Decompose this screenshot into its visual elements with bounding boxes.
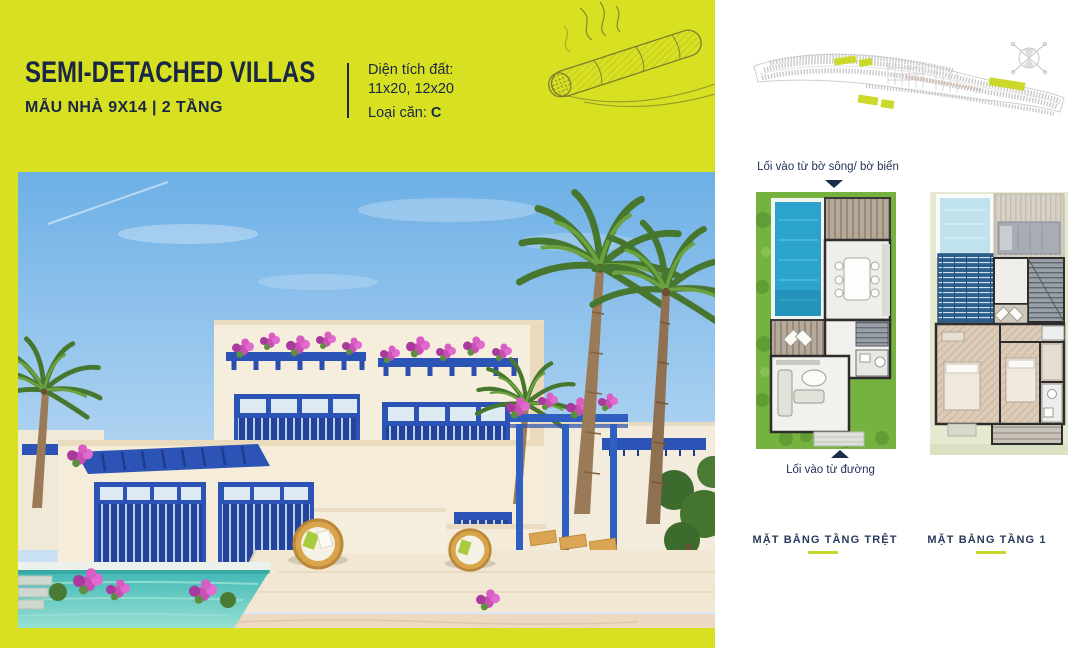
unit-info: Diện tích đất: 11x20, 12x20 Loại căn: C: [368, 61, 454, 123]
master-site-plan: [746, 30, 1072, 130]
page-title: SEMI-DETACHED VILLAS: [25, 56, 315, 90]
ground-floor-caption-underline: [808, 551, 838, 554]
land-area-label: Diện tích đất:: [368, 61, 454, 80]
entry-arrow-up-icon: [831, 450, 849, 458]
land-area-value: 11x20, 12x20: [368, 80, 454, 99]
entry-arrow-down-icon: [825, 180, 843, 188]
entry-top-label: Lối vào từ bờ sông/ bờ biển: [738, 161, 918, 173]
landing-deck: [994, 304, 1028, 324]
unit-type-label: Loại căn:: [368, 105, 427, 121]
first-floor-caption: MẶT BẰNG TẦNG 1: [912, 534, 1062, 546]
ground-floor-caption: MẶT BẰNG TẦNG TRỆT: [740, 534, 910, 546]
cigar-body: [545, 27, 704, 101]
hallway: [994, 258, 1028, 304]
first-floor-caption-underline: [976, 551, 1006, 554]
unit-type-line: Loại căn: C: [368, 104, 454, 123]
living-room: [771, 356, 849, 432]
page-subtitle: MẪU NHÀ 9X14 | 2 TẦNG: [25, 99, 223, 117]
bedroom-block: [936, 324, 1064, 424]
entrance-steps: [814, 432, 864, 446]
top-deck: [825, 198, 890, 240]
entry-bottom-label: Lối vào từ đường: [758, 464, 903, 476]
stairs: [1028, 258, 1064, 322]
louvre-roof: [938, 254, 994, 322]
header-divider: [347, 63, 349, 118]
dining-room: [825, 240, 890, 320]
roof-terrace: [994, 194, 1064, 260]
cigar-smoke: [564, 2, 620, 52]
pool: [771, 198, 825, 320]
first-floor-plan: [930, 192, 1068, 455]
ground-floor-plan: [756, 192, 896, 449]
brochure-page: SEMI-DETACHED VILLAS MẪU NHÀ 9X14 | 2 TẦ…: [0, 0, 1080, 648]
compass-rose-icon: [1012, 43, 1047, 74]
cigar-illustration: [540, 0, 715, 110]
villa-rendering: [18, 172, 715, 628]
mid-deck: [771, 320, 825, 356]
unit-type-value: C: [431, 105, 441, 121]
sand: [198, 614, 715, 628]
pool-void: [936, 194, 994, 258]
